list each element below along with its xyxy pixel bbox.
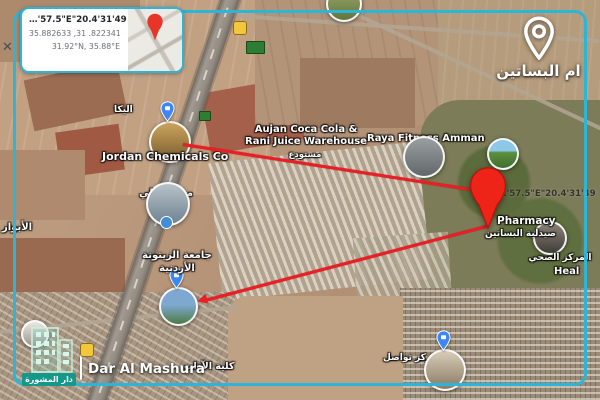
route-shield-icon bbox=[233, 21, 247, 35]
brand-logo-text: دار المشورة bbox=[22, 373, 76, 386]
poi-label-health-en[interactable]: Heal bbox=[554, 266, 579, 277]
poi-label-jordan-chemicals[interactable]: Jordan Chemicals Co bbox=[102, 150, 228, 163]
terrain-patch bbox=[0, 238, 125, 300]
location-pin-icon bbox=[521, 16, 557, 60]
pin-coordinates-label: …'57.5"E"20.4'31'49 bbox=[498, 189, 596, 199]
coordinates-short: 31.92°N, 35.88°E bbox=[29, 42, 124, 51]
terrain-patch bbox=[0, 150, 85, 220]
mosque-icon[interactable] bbox=[160, 216, 173, 229]
coordinate-card: …'57.5"E"20.4'31'49 35.882633 ,31 .82234… bbox=[20, 7, 184, 73]
poi-label-aujan-line1[interactable]: Aujan Coca Cola & bbox=[245, 124, 367, 135]
watermark-title: ام البساتين bbox=[491, 62, 586, 80]
destination-pin-icon[interactable] bbox=[469, 166, 507, 230]
brand-bar: دار المشورة Dar Al Mashura bbox=[22, 322, 205, 386]
road-sign-icon bbox=[246, 41, 265, 54]
road-sign-icon bbox=[199, 111, 211, 121]
coordinates-dms: …'57.5"E"20.4'31'49 bbox=[29, 15, 124, 25]
poi-label-pharmacy-ar[interactable]: صيدلية البساتين bbox=[486, 229, 556, 239]
thumbnail-pin-icon bbox=[145, 13, 165, 41]
photo-marker-tawasol[interactable] bbox=[424, 349, 466, 391]
building-logo-icon bbox=[22, 322, 76, 374]
coordinates-decimal: 35.882633 ,31 .822341 bbox=[29, 29, 124, 38]
poi-label-university-line2[interactable]: الأردنية bbox=[132, 263, 222, 274]
map-viewport[interactable]: اليكا Jordan Chemicals Co Aujan Coca Col… bbox=[0, 0, 600, 400]
terrain-patch bbox=[228, 296, 403, 400]
photo-marker-university[interactable] bbox=[159, 287, 198, 326]
poi-label-elika[interactable]: اليكا bbox=[114, 105, 133, 115]
poi-label-aujan-line2[interactable]: Rani Juice Warehouse bbox=[245, 136, 367, 147]
photo-pin-icon[interactable] bbox=[160, 101, 175, 122]
brand-name: Dar Al Mashura bbox=[88, 361, 205, 377]
area-label-abwar[interactable]: الأبوار bbox=[2, 222, 32, 233]
route-shield-icon bbox=[80, 343, 94, 357]
brand-logo: دار المشورة bbox=[22, 322, 76, 386]
watermark: ام البساتين bbox=[491, 16, 586, 80]
photo-pin-icon[interactable] bbox=[436, 330, 451, 351]
terrain-patch bbox=[300, 58, 415, 128]
poi-label-health-ar[interactable]: المركز الصحي bbox=[528, 253, 592, 263]
close-icon[interactable]: ✕ bbox=[2, 41, 13, 54]
photo-marker-raya[interactable] bbox=[403, 136, 445, 178]
poi-label-university-line1[interactable]: جامعة الزيتونة bbox=[132, 250, 222, 261]
map-thumbnail bbox=[128, 9, 182, 71]
